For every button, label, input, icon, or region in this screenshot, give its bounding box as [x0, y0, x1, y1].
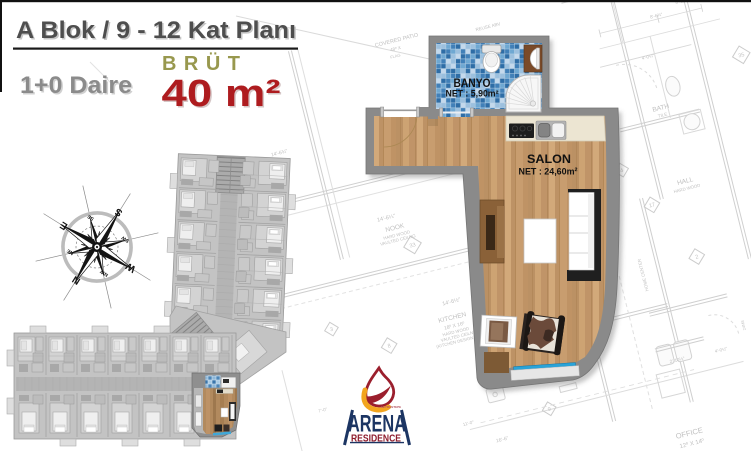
svg-text:NET : 5,90m²: NET : 5,90m² — [446, 89, 499, 99]
svg-text:40 m²: 40 m² — [162, 73, 281, 115]
svg-text:NET : 24,60m²: NET : 24,60m² — [519, 167, 578, 178]
svg-text:1+0 Daire: 1+0 Daire — [20, 72, 132, 99]
svg-text:SEYRANTEPE: SEYRANTEPE — [381, 405, 401, 409]
svg-text:SALON: SALON — [527, 154, 571, 166]
svg-text:A Blok / 9 - 12 Kat Planı: A Blok / 9 - 12 Kat Planı — [16, 17, 296, 44]
